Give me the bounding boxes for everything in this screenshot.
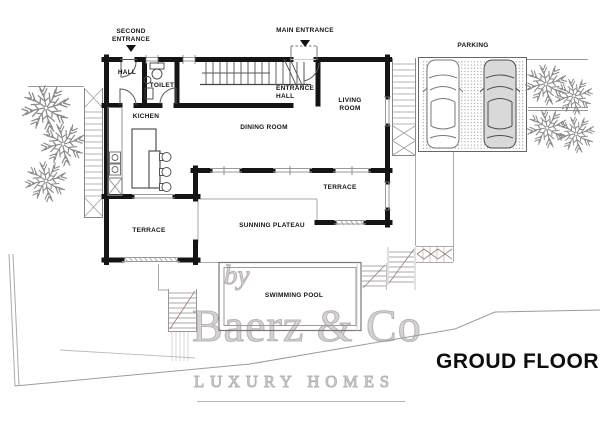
label-hall: HALL [118, 69, 136, 77]
car-icon [423, 60, 463, 148]
label-kitchen: KICHEN [133, 113, 159, 121]
label-main-entrance: MAIN ENTRANCE [276, 27, 334, 35]
page-title: GROUD FLOOR [436, 350, 599, 374]
tree-icon [21, 85, 70, 133]
label-terrace-right: TERRACE [323, 184, 356, 192]
tree-icon [24, 161, 67, 203]
car-icon [480, 60, 520, 148]
label-swimming-pool: SWIMMING POOL [265, 292, 323, 300]
floor-plan-canvas: by Baerz & Co LUXURY HOMES [0, 0, 600, 421]
label-terrace-left: TERRACE [132, 227, 165, 235]
label-entrance-hall: ENTRANCE HALL [276, 85, 314, 100]
label-parking: PARKING [457, 42, 488, 50]
tree-icon [526, 109, 566, 148]
label-toilet: TOILET [150, 82, 175, 90]
pool-left-stairs [168, 289, 197, 361]
kitchen-island [132, 129, 160, 188]
ramp-beside-house [392, 58, 416, 156]
kitchen-fixtures [108, 108, 122, 196]
label-second-entrance: SECOND ENTRANCE [112, 28, 150, 43]
second-entrance-arrow-icon [126, 45, 136, 52]
label-living-room: LIVING ROOM [338, 97, 361, 112]
tree-icon [40, 123, 85, 167]
main-staircase [200, 59, 311, 87]
tree-icon [555, 78, 593, 115]
parking-area [419, 58, 527, 152]
main-entrance-arrow-icon [300, 40, 310, 47]
label-dining-room: DINING ROOM [240, 124, 288, 132]
bar-stools [160, 153, 172, 192]
label-sunning-plateau: SUNNING PLATEAU [239, 222, 305, 230]
sunning-plateau-outline [158, 199, 317, 290]
main-entrance-porch [291, 46, 317, 60]
